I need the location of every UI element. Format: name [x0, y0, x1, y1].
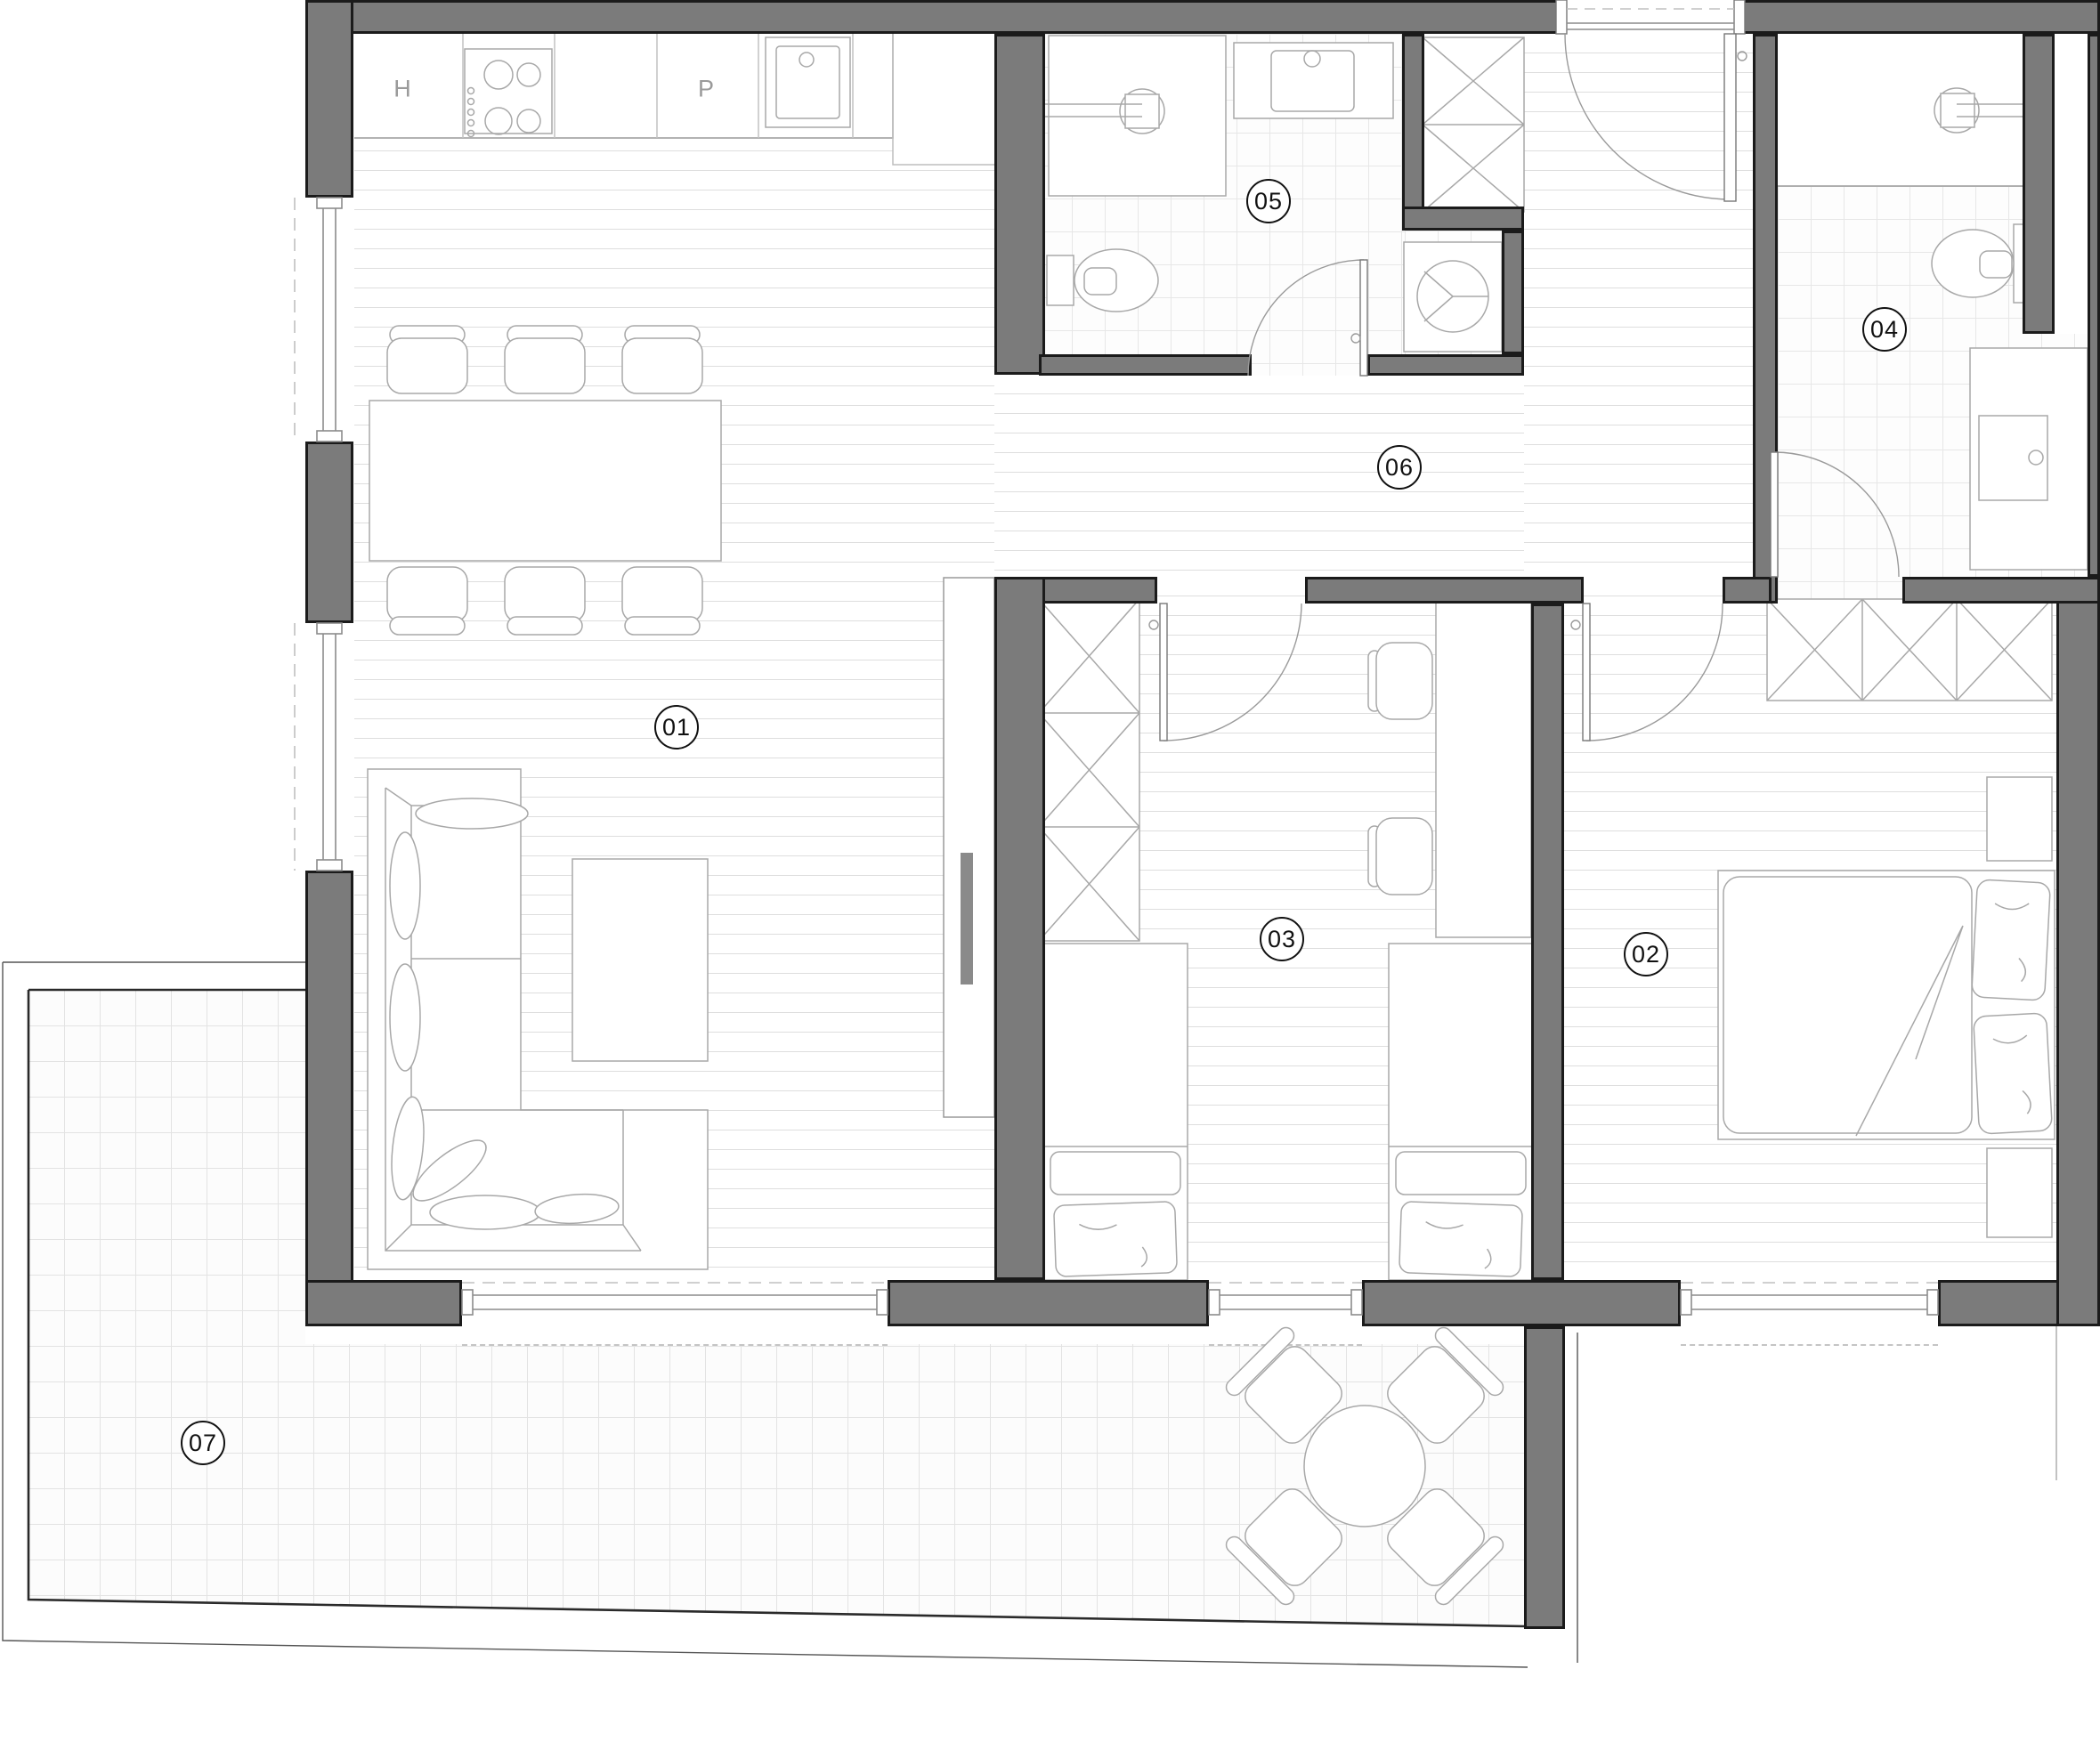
sill-bedroom02-window [1681, 1326, 1938, 1346]
wall-bottom-3 [1362, 1280, 1681, 1326]
label-room-01: 01 [654, 705, 699, 749]
room-04-number: 04 [1870, 316, 1899, 344]
sill-living-window [462, 1326, 888, 1346]
wall-rooms-band-b [1305, 577, 1584, 604]
kitchen-appliance-zone [893, 34, 994, 165]
hall-closet-icon [1423, 37, 1524, 212]
wall-left-b [305, 442, 353, 623]
floor-bathroom-05 [1039, 34, 1405, 376]
wall-top-left [305, 0, 1567, 34]
wall-room03-room02 [1531, 604, 1564, 1280]
duct-shaft [2055, 34, 2088, 334]
kitchen-counter-zone [354, 34, 893, 138]
label-room-05: 05 [1246, 179, 1291, 223]
window-bedroom03 [1209, 1283, 1362, 1315]
floor-hall-passage [994, 375, 1524, 604]
floor-hall-entry [1524, 34, 1753, 604]
wall-left-a [305, 0, 353, 198]
wall-bath05-bottom-a [1039, 354, 1252, 376]
label-room-06: 06 [1377, 445, 1422, 490]
label-pantry: P [698, 76, 714, 103]
wall-rooms-band-c [1723, 577, 1772, 604]
wall-right-bath04 [2088, 34, 2100, 577]
label-hob: H [393, 76, 411, 103]
wall-left-c [305, 871, 353, 1326]
wall-terrace-stub [1524, 1326, 1565, 1629]
floor-bedroom-02 [1564, 577, 2056, 1280]
room-06-number: 06 [1385, 454, 1414, 482]
label-room-04: 04 [1862, 307, 1907, 352]
label-room-07: 07 [181, 1421, 225, 1465]
room-01-number: 01 [662, 714, 691, 741]
label-room-03: 03 [1260, 917, 1304, 961]
wall-shaft [2023, 34, 2055, 334]
wall-bottom-1 [305, 1280, 462, 1326]
wall-hall-bath04 [1753, 34, 1778, 604]
room-02-number: 02 [1632, 941, 1660, 968]
wall-kitchen-bath05 [994, 34, 1045, 375]
floor-living-dining [354, 34, 994, 1280]
shower-area-04 [1778, 34, 2028, 186]
room-07-number: 07 [189, 1430, 217, 1457]
wall-closet-left [1402, 34, 1424, 231]
sill-bedroom03-window [1209, 1326, 1362, 1346]
floor-plan: 01 02 03 04 05 06 07 H P [0, 0, 2100, 1742]
room-03-number: 03 [1268, 926, 1296, 953]
wall-closet-bottom [1402, 207, 1524, 231]
wall-bottom-2 [888, 1280, 1209, 1326]
window-bedroom02 [1681, 1283, 1938, 1315]
wall-washer-right [1502, 231, 1524, 354]
wall-rooms-band-d [1902, 577, 2100, 604]
window-living-terrace [462, 1283, 888, 1315]
window-left-2 [295, 623, 342, 871]
wall-right-room02 [2056, 577, 2100, 1326]
room-05-number: 05 [1254, 188, 1283, 215]
label-room-02: 02 [1624, 932, 1668, 976]
window-left-1 [295, 198, 342, 442]
wall-living-room03 [994, 577, 1045, 1280]
wall-bath05-bottom-b [1367, 354, 1524, 376]
wall-top-right [1734, 0, 2100, 34]
